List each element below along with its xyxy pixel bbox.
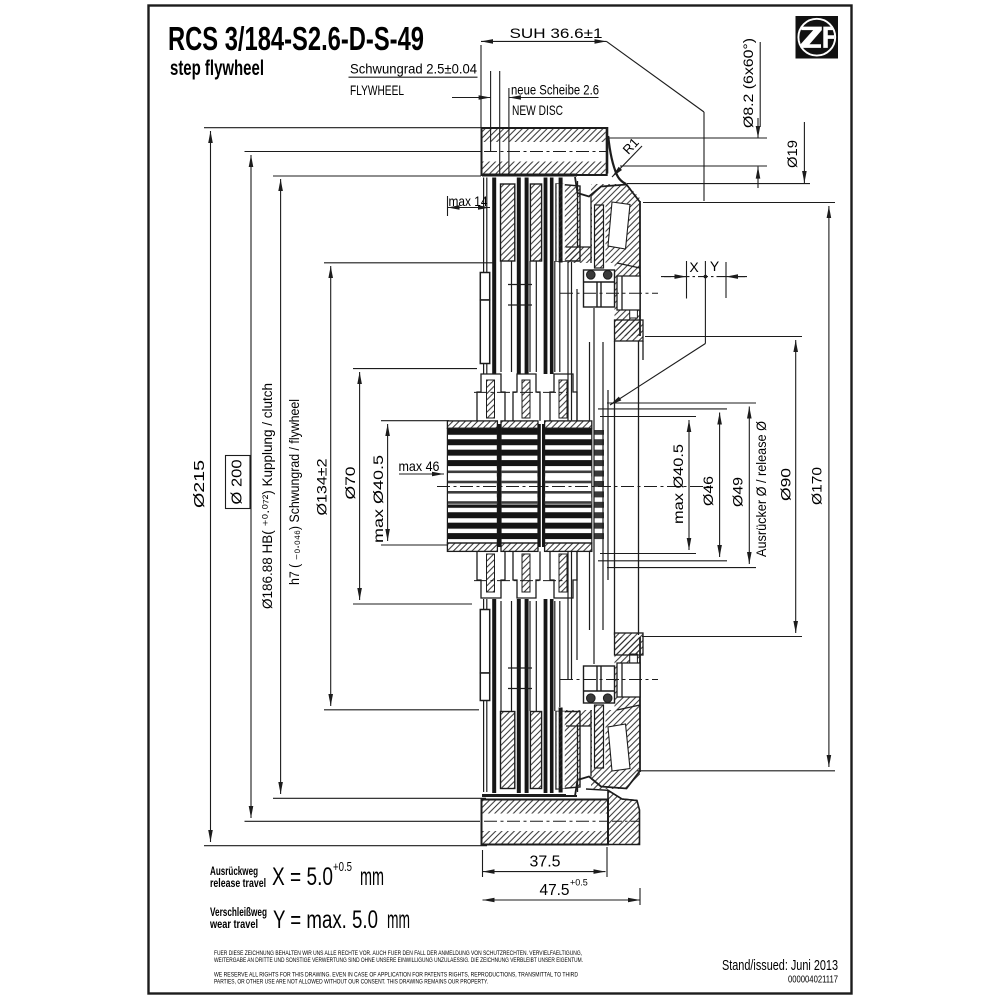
svg-text:max Ø40.5: max Ø40.5 [370, 455, 386, 543]
svg-text:X: X [689, 259, 699, 275]
svg-text:Ø70: Ø70 [342, 466, 358, 499]
svg-text:release travel: release travel [210, 876, 266, 890]
svg-text:Ø215: Ø215 [192, 460, 208, 508]
svg-text:FLYWHEEL: FLYWHEEL [350, 82, 404, 98]
svg-text:+0.5: +0.5 [333, 859, 352, 874]
svg-text:Ø90: Ø90 [778, 468, 794, 501]
svg-text:000004021117: 000004021117 [788, 975, 838, 986]
svg-text:Ø8.2 (6x60°): Ø8.2 (6x60°) [741, 38, 756, 128]
svg-text:Ø 200: Ø 200 [230, 460, 246, 505]
svg-text:Ø19: Ø19 [785, 140, 800, 168]
svg-text:max Ø40.5: max Ø40.5 [670, 444, 686, 524]
svg-text:Y: Y [710, 258, 720, 274]
svg-text:Y = max. 5.0: Y = max. 5.0 [273, 906, 378, 934]
svg-text:max 46: max 46 [399, 458, 440, 474]
svg-text:max 14: max 14 [449, 193, 488, 209]
svg-text:Ø49: Ø49 [730, 477, 746, 507]
svg-text:X = 5.0: X = 5.0 [272, 863, 333, 891]
svg-text:step flywheel: step flywheel [170, 57, 264, 80]
svg-text:Ø170: Ø170 [809, 467, 825, 505]
svg-text:47.5: 47.5 [540, 882, 570, 899]
svg-text:Stand/issued: Juni 2013: Stand/issued: Juni 2013 [722, 957, 838, 974]
svg-text:wear travel: wear travel [209, 917, 258, 931]
svg-text:mm: mm [360, 863, 384, 891]
svg-text:WE RESERVE ALL RIGHTS FOR THIS: WE RESERVE ALL RIGHTS FOR THIS DRAWING. … [214, 972, 578, 979]
svg-text:Ø134±2: Ø134±2 [314, 458, 330, 515]
svg-text:SUH 36.6±1: SUH 36.6±1 [510, 25, 603, 41]
svg-text:RCS 3/184-S2.6-D-S-49: RCS 3/184-S2.6-D-S-49 [168, 20, 424, 57]
svg-text:neue Scheibe 2.6: neue Scheibe 2.6 [511, 82, 599, 98]
svg-text:FUER DIESE ZEICHNUNG BEHALTEN: FUER DIESE ZEICHNUNG BEHALTEN WIR UNS AL… [214, 950, 582, 957]
svg-text:PARTIES, OR OTHER USE ARE NOT: PARTIES, OR OTHER USE ARE NOT ALLOWED WI… [214, 979, 488, 986]
svg-text:h7 ( ₋₀.₀₄₆) Schwungrad / flyw: h7 ( ₋₀.₀₄₆) Schwungrad / flywheel [287, 399, 302, 585]
svg-text:+0.5: +0.5 [570, 878, 588, 888]
svg-text:Ausrücker Ø / release Ø: Ausrücker Ø / release Ø [754, 421, 769, 557]
svg-text:mm: mm [387, 906, 410, 934]
svg-text:NEW DISC: NEW DISC [512, 102, 563, 118]
svg-text:Schwungrad 2.5±0.04: Schwungrad 2.5±0.04 [350, 61, 477, 77]
svg-text:WEITERGABE AN DRITTE UND SONST: WEITERGABE AN DRITTE UND SONSTIGE VERWER… [214, 957, 583, 964]
svg-text:Ø46: Ø46 [700, 476, 716, 506]
svg-text:37.5: 37.5 [530, 854, 561, 871]
svg-text:Ø186.88 HB( ⁺⁰·⁰⁷²) Kupplung /: Ø186.88 HB( ⁺⁰·⁰⁷²) Kupplung / clutch [260, 383, 275, 609]
